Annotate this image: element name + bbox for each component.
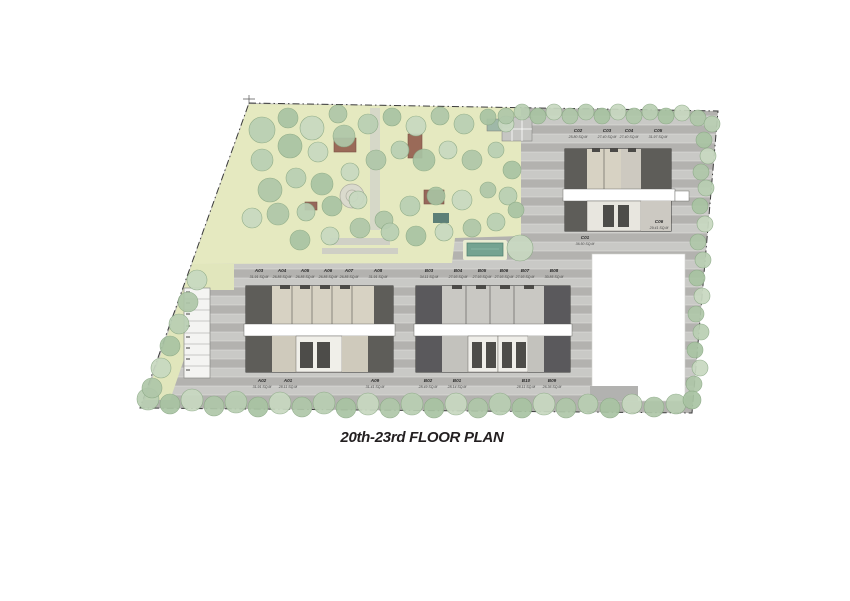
- tree-icon: [336, 398, 356, 418]
- tree-icon: [594, 108, 610, 124]
- unit-id: B04: [454, 268, 463, 273]
- tree-icon: [452, 190, 472, 210]
- tree-icon: [169, 314, 189, 334]
- tree-icon: [463, 219, 481, 237]
- tree-icon: [556, 398, 576, 418]
- unit-id: A09: [370, 378, 380, 383]
- tree-icon: [578, 394, 598, 414]
- garden-steps: [322, 248, 398, 254]
- tree-icon: [391, 141, 409, 159]
- building-b: [414, 285, 572, 372]
- unit-area: 31.41 SQ.M: [366, 385, 385, 389]
- tree-icon: [530, 108, 546, 124]
- tree-icon: [642, 104, 658, 120]
- tree-icon: [225, 391, 247, 413]
- tree-icon: [292, 397, 312, 417]
- unit-area: 26.36 SQ.M: [542, 385, 562, 389]
- tree-icon: [468, 398, 488, 418]
- garden-steps: [330, 238, 390, 245]
- unit-id: A07: [344, 268, 354, 273]
- tree-icon: [488, 142, 504, 158]
- tree-icon: [690, 234, 706, 250]
- tree-icon: [487, 213, 505, 231]
- tree-icon: [698, 180, 714, 196]
- tree-icon: [610, 104, 626, 120]
- tree-icon: [686, 376, 702, 392]
- tree-icon: [297, 203, 315, 221]
- tree-icon: [278, 108, 298, 128]
- tree-icon: [512, 398, 532, 418]
- tree-icon: [321, 227, 339, 245]
- unit-id: A06: [323, 268, 333, 273]
- unit-area: 27.40 SQ.M: [619, 135, 639, 139]
- unit-area: 27.93 SQ.M: [472, 275, 492, 279]
- unit-id: B08: [550, 268, 559, 273]
- tree-icon: [181, 389, 203, 411]
- tree-icon: [626, 108, 642, 124]
- tree-icon: [350, 218, 370, 238]
- tree-icon: [489, 393, 511, 415]
- tree-icon: [546, 104, 562, 120]
- tree-icon: [462, 150, 482, 170]
- tree-icon: [674, 105, 690, 121]
- unit-id: B02: [424, 378, 433, 383]
- floor-plan-page: A03 31.91 SQ.M A04 26.85 SQ.M A05 26.85 …: [0, 0, 850, 601]
- tree-icon: [427, 187, 445, 205]
- tree-icon: [178, 292, 198, 312]
- unit-id: B09: [548, 378, 557, 383]
- unit-area: 26.85 SQ.M: [318, 275, 338, 279]
- unit-area: 28.14 SQ.M: [447, 385, 467, 389]
- tree-icon: [622, 394, 642, 414]
- tree-icon: [357, 393, 379, 415]
- tree-icon: [562, 108, 578, 124]
- tree-icon: [431, 107, 449, 125]
- tree-icon: [258, 178, 282, 202]
- tree-icon: [508, 202, 524, 218]
- unit-area: 31.91 SQ.M: [369, 275, 388, 279]
- tree-icon: [480, 109, 496, 125]
- tree-icon: [406, 116, 426, 136]
- tree-icon: [160, 394, 180, 414]
- unit-area: 36.50 SQ.M: [576, 242, 595, 246]
- tree-icon: [578, 104, 594, 120]
- unit-area: 28.11 SQ.M: [516, 385, 536, 389]
- tree-icon: [380, 398, 400, 418]
- corridor: [563, 189, 675, 201]
- tree-icon: [683, 391, 701, 409]
- pond: [433, 213, 449, 223]
- tree-icon: [439, 141, 457, 159]
- tree-icon: [600, 398, 620, 418]
- unit-id: B07: [521, 268, 530, 273]
- unit-id: B05: [478, 268, 487, 273]
- tree-icon: [424, 398, 444, 418]
- unit-id: C02: [574, 128, 583, 133]
- unit-area: 26.85 SQ.M: [272, 275, 292, 279]
- tree-icon: [322, 196, 342, 216]
- unit-area: 26.85 SQ.M: [295, 275, 315, 279]
- unit-id: B06: [500, 268, 509, 273]
- unit-id: A03: [254, 268, 264, 273]
- unit-area: 25.80 SQ.M: [568, 135, 588, 139]
- tree-icon: [454, 114, 474, 134]
- tree-icon: [413, 149, 435, 171]
- tree-icon: [658, 108, 674, 124]
- unit-area: 31.97 SQ.M: [649, 135, 668, 139]
- tree-icon: [480, 182, 496, 198]
- unit-area: 29.41 SQ.M: [649, 226, 669, 230]
- tree-icon: [435, 223, 453, 241]
- tree-icon: [498, 108, 514, 124]
- unit-area: 31.91 SQ.M: [250, 275, 269, 279]
- tree-icon: [666, 394, 686, 414]
- tree-icon: [696, 132, 712, 148]
- unit-area: 28.11 SQ.M: [278, 385, 298, 389]
- tree-icon: [249, 117, 275, 143]
- tree-icon: [694, 288, 710, 304]
- tree-icon: [341, 163, 359, 181]
- tree-icon: [693, 164, 709, 180]
- tree-icon: [692, 198, 708, 214]
- unit-id: C04: [625, 128, 634, 133]
- unit-area: 27.93 SQ.M: [515, 275, 535, 279]
- tree-icon: [689, 270, 705, 286]
- site-plan: A03 31.91 SQ.M A04 26.85 SQ.M A05 26.85 …: [0, 0, 850, 601]
- unit-id: C05: [654, 128, 663, 133]
- tree-icon: [187, 270, 207, 290]
- tree-icon: [383, 108, 401, 126]
- tree-icon: [692, 360, 708, 376]
- tree-icon: [400, 196, 420, 216]
- tree-icon: [329, 105, 347, 123]
- unit-id: A01: [283, 378, 293, 383]
- corridor: [414, 324, 572, 336]
- tree-icon: [204, 396, 224, 416]
- tree-icon: [503, 161, 521, 179]
- unit-id: B01: [453, 378, 462, 383]
- tree-icon: [358, 114, 378, 134]
- unit-area: 27.93 SQ.M: [494, 275, 514, 279]
- corridor: [244, 324, 395, 336]
- tree-icon: [349, 191, 367, 209]
- tree-icon: [286, 168, 306, 188]
- tree-icon: [313, 392, 335, 414]
- building-a: [244, 285, 395, 372]
- unit-area: 30.85 SQ.M: [545, 275, 564, 279]
- tree-icon: [697, 216, 713, 232]
- unit-id: C01: [581, 235, 590, 240]
- unit-id: A02: [257, 378, 267, 383]
- tree-icon: [300, 116, 324, 140]
- tree-icon: [269, 392, 291, 414]
- tree-icon: [308, 142, 328, 162]
- tree-icon: [690, 110, 706, 126]
- unit-id: A04: [277, 268, 287, 273]
- tree-icon: [311, 173, 333, 195]
- tree-icon: [704, 116, 720, 132]
- tree-icon: [695, 252, 711, 268]
- unit-area: 26.85 SQ.M: [339, 275, 359, 279]
- tree-icon: [514, 104, 530, 120]
- tree-icon: [693, 324, 709, 340]
- tree-icon: [160, 336, 180, 356]
- tree-icon: [333, 125, 355, 147]
- tree-icon: [644, 397, 664, 417]
- tree-icon: [445, 393, 467, 415]
- tree-icon: [251, 149, 273, 171]
- tree-icon: [687, 342, 703, 358]
- tree-icon: [267, 203, 289, 225]
- tree-icon: [533, 393, 555, 415]
- tree-icon: [278, 134, 302, 158]
- tree-icon: [406, 226, 426, 246]
- unit-area: 27.93 SQ.M: [448, 275, 468, 279]
- unit-id: B03: [425, 268, 434, 273]
- tree-icon: [366, 150, 386, 170]
- plan-title: 20th-23rd FLOOR PLAN: [317, 429, 527, 446]
- unit-id: C06: [655, 219, 664, 224]
- unit-id: A05: [300, 268, 310, 273]
- tree-icon: [290, 230, 310, 250]
- tree-icon: [401, 393, 423, 415]
- tree-icon: [700, 148, 716, 164]
- unit-area: 34.11 SQ.M: [420, 275, 439, 279]
- tree-icon: [248, 397, 268, 417]
- unit-area: 31.91 SQ.M: [253, 385, 272, 389]
- adjacent-building: [590, 254, 685, 401]
- tree-icon: [507, 235, 533, 261]
- unit-id: A08: [373, 268, 383, 273]
- unit-area: 28.49 SQ.M: [418, 385, 438, 389]
- tree-icon: [151, 358, 171, 378]
- unit-area: 27.40 SQ.M: [597, 135, 617, 139]
- tree-icon: [142, 378, 162, 398]
- unit-id: C03: [603, 128, 612, 133]
- tree-icon: [381, 223, 399, 241]
- building-c: [563, 148, 689, 231]
- unit-id: B10: [522, 378, 531, 383]
- pool: [463, 240, 507, 260]
- tree-icon: [242, 208, 262, 228]
- tree-icon: [688, 306, 704, 322]
